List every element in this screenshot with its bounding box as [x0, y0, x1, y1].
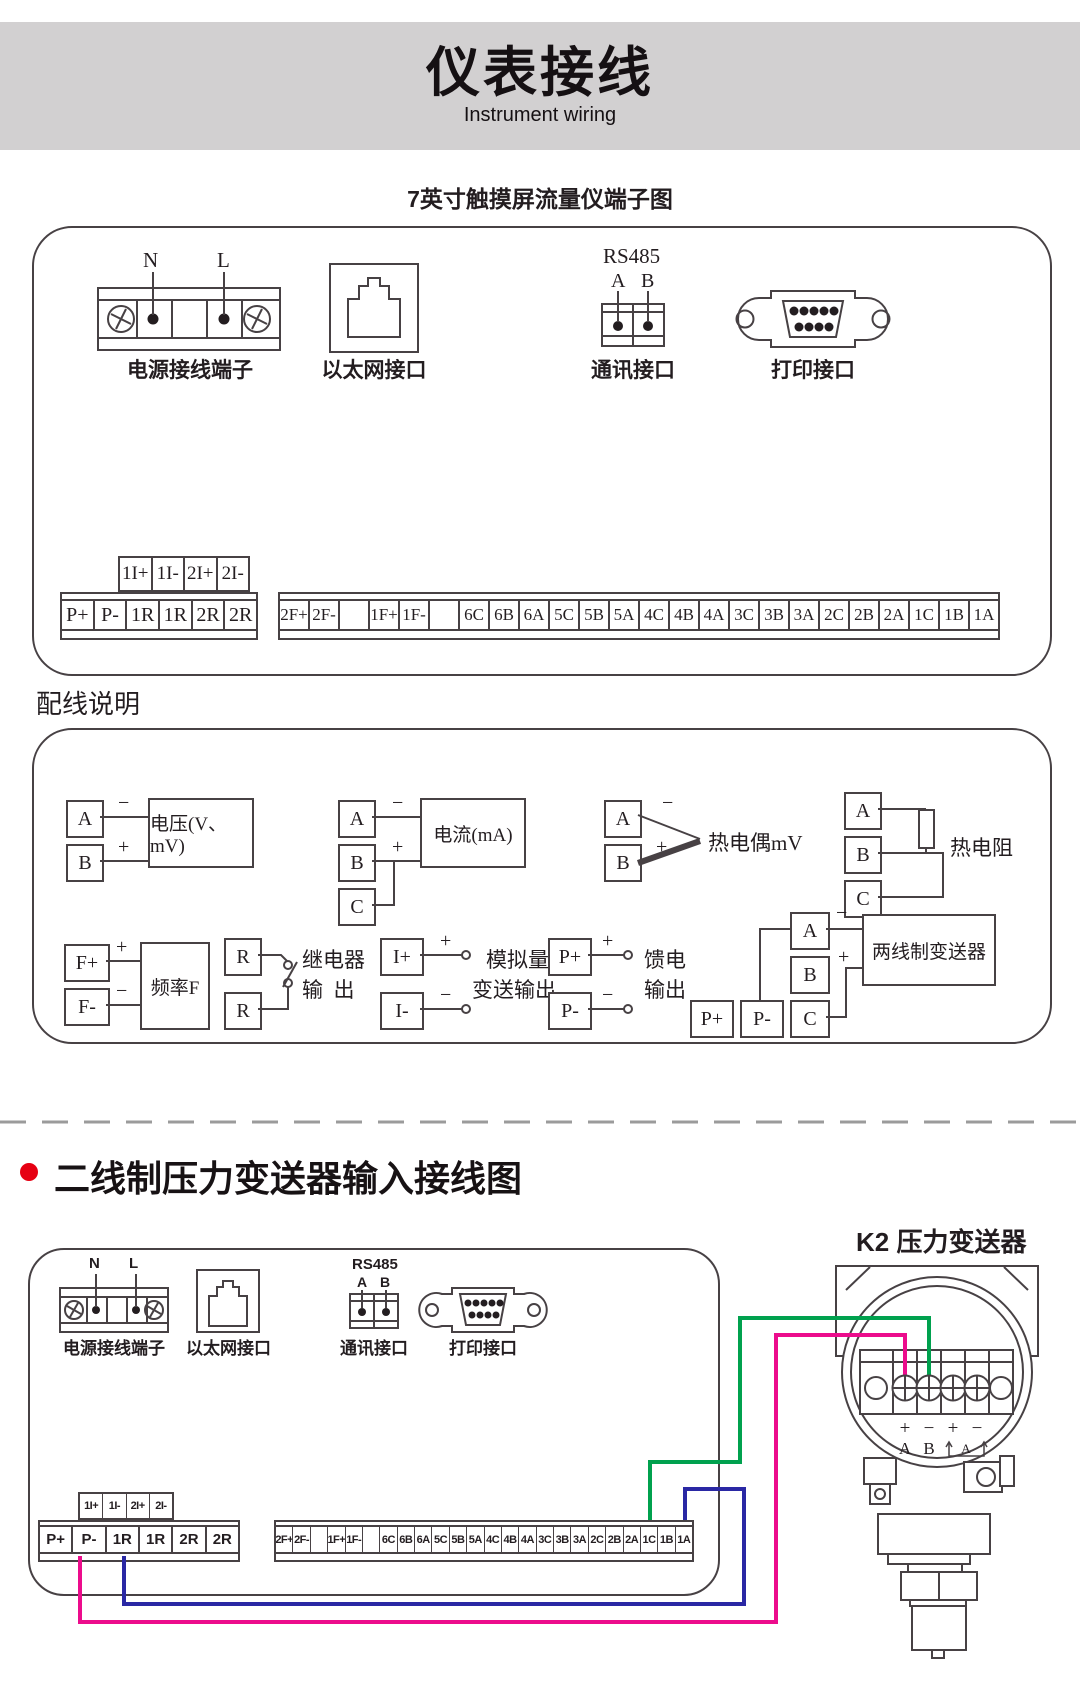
pin-label-a: A [611, 270, 625, 293]
bullet-icon [20, 1163, 38, 1181]
minus-sign: − [392, 792, 403, 815]
plus-sign: + [118, 836, 129, 859]
printer-label: 打印接口 [771, 354, 855, 384]
terminal-cell: 1F+ [370, 601, 400, 629]
terminal-cell: 2I+ [127, 1494, 150, 1518]
ethernet-label: 以太网接口 [318, 354, 430, 384]
terminal-r2: R [224, 992, 262, 1030]
minus-sign: − [118, 792, 129, 815]
feed-label-1: 馈电 [644, 944, 686, 974]
minus-sign: − [440, 984, 451, 1007]
terminal-cell: 6B [490, 601, 520, 629]
terminal-f-plus: F+ [64, 944, 110, 982]
plus-sign: + [838, 946, 849, 969]
pin-label-a: A [357, 1274, 367, 1290]
terminal-cell [340, 601, 370, 629]
plus-sign: + [116, 936, 127, 959]
pin-label-l: L [217, 248, 230, 273]
strip-left: P+P-1R1R2R2R [60, 592, 258, 640]
terminal-cell: 4B [502, 1527, 519, 1552]
ethernet-label: 以太网接口 [186, 1334, 271, 1359]
terminal-b: B [790, 956, 830, 994]
terminal-cell: P- [73, 1527, 106, 1552]
transmitter-screws [865, 1376, 1012, 1401]
rtd-label: 热电阻 [950, 832, 1013, 862]
current-module: 电流(mA) [420, 798, 526, 868]
relay-label-1: 继电器 [302, 944, 365, 974]
k2-transmitter-title: K2 压力变送器 [856, 1222, 1026, 1259]
terminal-cell: P+ [40, 1527, 73, 1552]
page-title: 仪表接线 [426, 45, 654, 102]
terminal-cell: 1I- [103, 1494, 126, 1518]
terminal-cell: 6B [398, 1527, 415, 1552]
terminal-a: A [338, 800, 376, 838]
terminal-cell: 1R [107, 1527, 140, 1552]
terminal-cell: 2B [850, 601, 880, 629]
terminal-cell: 2C [589, 1527, 606, 1552]
terminal-cell: 4C [640, 601, 670, 629]
terminal-cell: 4A [519, 1527, 536, 1552]
pin-label-b: B [923, 1439, 934, 1458]
terminal-cell: 6A [415, 1527, 432, 1552]
terminal-cell: 4B [670, 601, 700, 629]
twowire-module: 两线制变送器 [862, 914, 996, 986]
plus-sign: + [948, 1418, 959, 1439]
terminal-p-minus: P- [548, 992, 592, 1030]
terminal-b: B [66, 844, 104, 882]
terminal-cell: 2A [624, 1527, 641, 1552]
analog-label-1: 模拟量 [486, 944, 549, 974]
pin-label-n: N [89, 1255, 100, 1272]
terminal-cell: 2C [820, 601, 850, 629]
strip-right: 2F+2F-1F+1F-6C6B6A5C5B5A4C4B4A3C3B3A2C2B… [274, 1520, 694, 1562]
terminal-cell: 4A [700, 601, 730, 629]
terminal-cell: 5B [450, 1527, 467, 1552]
terminal-cell: 2F+ [280, 601, 310, 629]
terminal-cell: 1F- [346, 1527, 363, 1552]
terminal-cell: 1C [910, 601, 940, 629]
terminal-cell: 2R [193, 601, 226, 629]
terminal-cell: 4C [485, 1527, 502, 1552]
wiring-heading: 配线说明 [36, 684, 140, 721]
pin-label-a2: A [961, 1441, 971, 1456]
terminal-a: A [844, 792, 882, 830]
terminal-cell [430, 601, 460, 629]
terminal-cell: 1C [641, 1527, 658, 1552]
terminal-cell: 5C [432, 1527, 449, 1552]
terminal-cell: 2I+ [185, 558, 218, 590]
terminal-b: B [338, 844, 376, 882]
terminal-cell: P- [95, 601, 128, 629]
terminal-a: A [604, 800, 642, 838]
diagram2-heading: 二线制压力变送器输入接线图 [54, 1150, 522, 1202]
terminal-r1: R [224, 938, 262, 976]
strip-right: 2F+2F-1F+1F-6C6B6A5C5B5A4C4B4A3C3B3A2C2B… [278, 592, 1000, 640]
plus-sign: + [440, 930, 451, 953]
terminal-cell: 1I- [153, 558, 186, 590]
strip-left: P+P-1R1R2R2R [38, 1520, 240, 1562]
thermocouple-label: 热电偶mV [708, 827, 803, 857]
rs485-label: RS485 [352, 1256, 398, 1273]
terminal-cell: 5A [610, 601, 640, 629]
minus-sign: − [924, 1418, 935, 1439]
analog-label-2: 变送输出 [472, 974, 556, 1004]
terminal-cell: 6A [520, 601, 550, 629]
title-banner: 仪表接线 Instrument wiring [0, 22, 1080, 150]
feed-label-2: 输出 [644, 974, 686, 1004]
terminal-a: A [66, 800, 104, 838]
minus-sign: − [836, 902, 847, 925]
page-subtitle: Instrument wiring [464, 104, 616, 127]
pin-label-b: B [380, 1274, 390, 1290]
pin-label-n: N [143, 248, 158, 273]
terminal-cell: 1R [160, 601, 193, 629]
voltage-module: 电压(V、mV) [148, 798, 254, 868]
arrow-tick-icon [981, 1442, 987, 1447]
terminal-cell: 2B [606, 1527, 623, 1552]
terminal-cell: 1B [940, 601, 970, 629]
terminal-cell: 1R [127, 601, 160, 629]
terminal-cell [311, 1527, 328, 1552]
arrow-tick-icon [946, 1442, 952, 1447]
terminal-cell: 2I- [218, 558, 249, 590]
terminal-cell: 1I+ [120, 558, 153, 590]
diagram1-heading: 7英寸触摸屏流量仪端子图 [0, 180, 1080, 214]
terminal-i-plus: I+ [380, 938, 424, 976]
plus-sign: + [900, 1418, 911, 1439]
strip-current-inputs: 1I+1I-2I+2I- [78, 1492, 174, 1520]
terminal-i-minus: I- [380, 992, 424, 1030]
terminal-b: B [604, 844, 642, 882]
strip-rail [280, 629, 998, 638]
power-terminal-label: 电源接线端子 [120, 354, 260, 384]
terminal-cell: 3B [760, 601, 790, 629]
terminal-c: C [844, 880, 882, 918]
terminal-cell: 2R [225, 601, 256, 629]
relay-label-2: 输 出 [302, 974, 355, 1004]
bracket-icon [949, 1443, 984, 1456]
terminal-cell: 5B [580, 601, 610, 629]
terminal-c: C [338, 888, 376, 926]
terminal-a: A [790, 912, 830, 950]
terminal-b: B [844, 836, 882, 874]
strip-rail [276, 1552, 692, 1560]
terminal-cell: 2F- [293, 1527, 310, 1552]
strip-rail [62, 629, 256, 638]
k2-transmitter-drawing [836, 1266, 1038, 1658]
strip-rail [62, 594, 256, 601]
terminal-cell: 3A [571, 1527, 588, 1552]
minus-sign: − [662, 792, 673, 815]
terminal-cell: 6C [380, 1527, 397, 1552]
terminal-cell: 3A [790, 601, 820, 629]
terminal-cell: 1I+ [80, 1494, 103, 1518]
terminal-p-plus: P+ [548, 938, 592, 976]
terminal-cell: 3C [730, 601, 760, 629]
terminal-p-minus: P- [740, 1000, 784, 1038]
strip-rail [280, 594, 998, 601]
terminal-cell: 1R [140, 1527, 173, 1552]
terminal-cell: 1F- [400, 601, 430, 629]
terminal-f-minus: F- [64, 988, 110, 1026]
plus-sign: + [656, 836, 667, 859]
pin-label-b: B [641, 270, 654, 293]
strip-current-inputs: 1I+1I-2I+2I- [118, 556, 250, 592]
terminal-cell: 1F+ [328, 1527, 345, 1552]
terminal-c: C [790, 1000, 830, 1038]
power-terminal-label: 电源接线端子 [44, 1334, 184, 1359]
plus-sign: + [602, 930, 613, 953]
terminal-cell: 2F+ [276, 1527, 293, 1552]
terminal-cell: 6C [460, 601, 490, 629]
terminal-cell: 1A [676, 1527, 692, 1552]
terminal-cell: P+ [62, 601, 95, 629]
pin-label-a: A [899, 1439, 912, 1458]
pin-label-l: L [129, 1255, 138, 1272]
terminal-cell: 1B [658, 1527, 675, 1552]
terminal-cell: 2R [173, 1527, 206, 1552]
transmitter-pin-labels: + − + − A B A [899, 1418, 987, 1458]
terminal-cell: 5A [467, 1527, 484, 1552]
page: 仪表接线 Instrument wiring 7英寸触摸屏流量仪端子图 N L … [0, 0, 1080, 1684]
minus-sign: − [116, 980, 127, 1003]
terminal-p-plus: P+ [690, 1000, 734, 1038]
minus-sign: − [972, 1418, 983, 1439]
frequency-module: 频率F [140, 942, 210, 1030]
comm-label: 通讯接口 [340, 1334, 408, 1359]
minus-sign: − [602, 984, 613, 1007]
comm-label: 通讯接口 [591, 354, 675, 384]
plus-sign: + [392, 836, 403, 859]
rs485-label: RS485 [603, 244, 660, 269]
terminal-cell: 3C [537, 1527, 554, 1552]
terminal-cell: 2I- [150, 1494, 172, 1518]
terminal-cell [363, 1527, 380, 1552]
terminal-cell: 2R [207, 1527, 238, 1552]
terminal-cell: 3B [554, 1527, 571, 1552]
terminal-cell: 5C [550, 601, 580, 629]
terminal-cell: 2F- [310, 601, 340, 629]
strip-rail [40, 1552, 238, 1560]
terminal-cell: 2A [880, 601, 910, 629]
terminal-cell: 1A [970, 601, 998, 629]
printer-label: 打印接口 [449, 1334, 517, 1359]
